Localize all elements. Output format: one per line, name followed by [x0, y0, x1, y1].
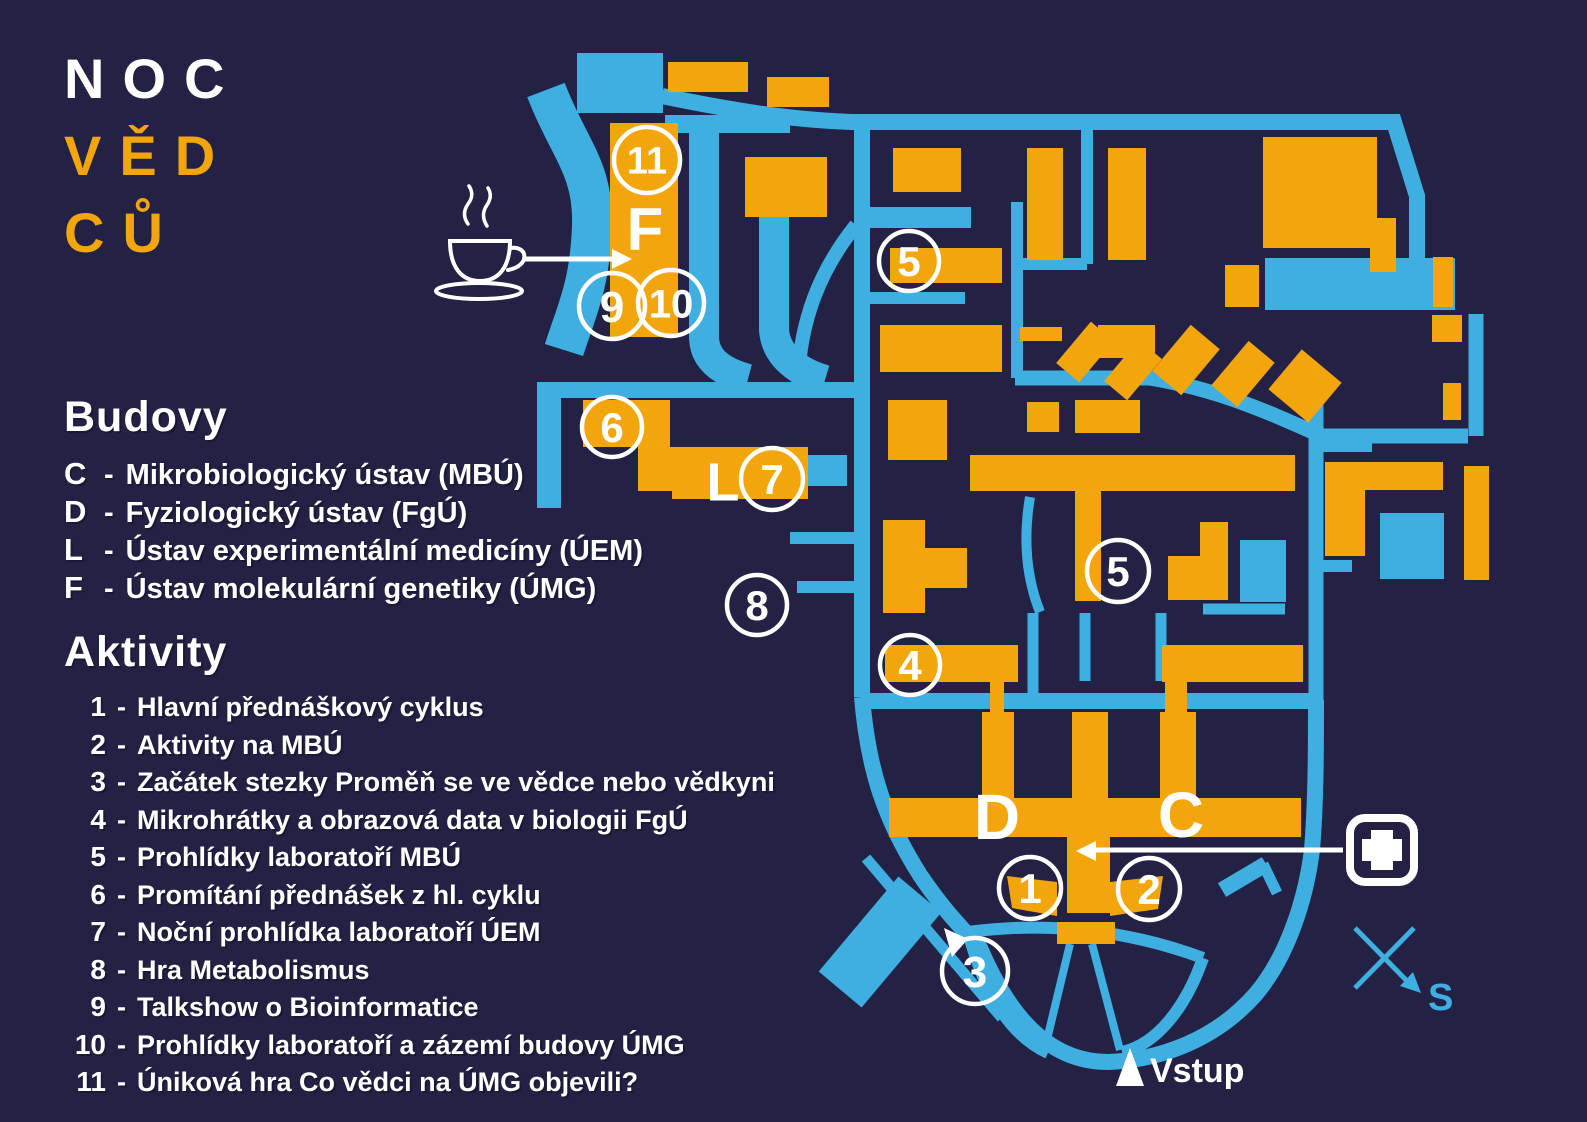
road-fan-spoke-1	[1044, 944, 1070, 1052]
legend-key: 10	[64, 1029, 106, 1061]
building-n2	[767, 77, 829, 107]
svg-text:10: 10	[649, 282, 694, 326]
legend-item-1: 1-Hlavní přednáškový cyklus	[64, 691, 854, 729]
legend-dash: -	[117, 955, 126, 986]
building-ne-s3	[1432, 315, 1462, 342]
building-letter-D: D	[974, 781, 1020, 853]
road-west-curve	[798, 225, 856, 382]
svg-text:5: 5	[1106, 548, 1129, 595]
legend-key: 7	[64, 916, 106, 948]
logo-line-1: NOC	[64, 40, 242, 117]
first-aid-icon	[1350, 818, 1414, 882]
building-w1	[880, 325, 1002, 372]
building-w3	[888, 400, 947, 460]
parking-east	[1380, 513, 1444, 579]
road-firstaid-tick	[1263, 864, 1277, 893]
legend-dash: -	[117, 767, 126, 798]
building-ne-large	[1263, 137, 1377, 248]
legend-text: Noční prohlídka laboratoří ÚEM	[137, 917, 541, 948]
building-ne-s2	[1433, 257, 1453, 307]
legend-item-9: 9-Talkshow o Bioinformatice	[64, 991, 854, 1029]
building-stub-2	[1165, 682, 1187, 712]
legend-text: Promítání přednášek z hl. cyklu	[137, 880, 541, 911]
legend-item-10: 10-Prohlídky laboratoří a zázemí budovy …	[64, 1029, 854, 1067]
legend-key: 6	[64, 879, 106, 911]
building-ne-ext	[1370, 218, 1396, 272]
legend-key: D	[64, 494, 92, 530]
svg-text:4: 4	[898, 642, 922, 689]
svg-text:2: 2	[1137, 866, 1160, 913]
coffee-icon	[436, 186, 524, 299]
svg-text:11: 11	[627, 141, 667, 183]
building-fan-stub	[1057, 922, 1115, 944]
legend-key: C	[64, 456, 92, 492]
legend-text: Ústav molekulární genetiky (ÚMG)	[126, 573, 597, 606]
legend-dash: -	[117, 917, 126, 948]
building-dc-tower-2	[1072, 712, 1108, 800]
building-w2	[962, 250, 1000, 283]
building-mid-band	[970, 455, 1295, 491]
legend-item-5: 5-Prohlídky laboratoří MBÚ	[64, 841, 854, 879]
legend-text: Hlavní přednáškový cyklus	[137, 692, 484, 723]
legend-key: 9	[64, 991, 106, 1023]
building-letter-C: C	[1158, 779, 1204, 851]
legend-text: Prohlídky laboratoří a zázemí budovy ÚMG	[137, 1030, 685, 1061]
legend-dash: -	[117, 1067, 126, 1098]
legend-item-D: D-Fyziologický ústav (FgÚ)	[64, 494, 854, 532]
legend-key: 1	[64, 691, 106, 723]
svg-text:5: 5	[897, 238, 920, 285]
legend-key: 4	[64, 804, 106, 836]
legend-item-3: 3-Začátek stezky Proměň se ve vědce nebo…	[64, 766, 854, 804]
building-stub-1	[990, 682, 1004, 712]
building-curved-band	[546, 90, 592, 350]
parking-mid	[1240, 540, 1286, 602]
compass-icon: S	[1355, 928, 1453, 1019]
building-letter-F: F	[627, 196, 664, 263]
legend-text: Talkshow o Bioinformatice	[137, 992, 479, 1023]
legend-dash: -	[117, 842, 126, 873]
legend-text: Aktivity na MBÚ	[137, 730, 343, 761]
activities-heading: Aktivity	[64, 628, 854, 677]
building-mid-sq1	[1027, 402, 1059, 432]
legend-key: 2	[64, 729, 106, 761]
building-n3	[745, 157, 827, 217]
legend-item-11: 11-Úniková hra Co vědci na ÚMG objevili?	[64, 1066, 854, 1104]
legend-dash: -	[117, 992, 126, 1023]
road-diag-thin	[1026, 497, 1040, 612]
road-fan-spoke-2	[1092, 944, 1120, 1050]
legend-dash: -	[104, 573, 114, 606]
building-tower-2	[1108, 148, 1146, 260]
legend-key: 11	[64, 1066, 106, 1098]
building-tower-1	[1027, 148, 1063, 260]
legend-key: L	[64, 532, 92, 568]
building-w4b	[925, 548, 967, 588]
legend-item-8: 8-Hra Metabolismus	[64, 954, 854, 992]
legend-dash: -	[104, 459, 114, 492]
legend-dash: -	[117, 805, 126, 836]
legend-dash: -	[117, 1030, 126, 1061]
parking-north	[869, 207, 971, 228]
building-e1	[1325, 462, 1443, 490]
building-dc-bar	[889, 798, 1301, 837]
legend-text: Hra Metabolismus	[137, 955, 370, 986]
svg-text:3: 3	[963, 948, 987, 997]
legend-key: F	[64, 570, 92, 606]
road-f-east-1	[704, 117, 748, 379]
logo-line-2: VĚD	[64, 117, 242, 194]
building-c1	[1020, 327, 1062, 341]
building-ne-s4	[1443, 383, 1461, 420]
compass-south-label: S	[1428, 977, 1453, 1019]
buildings-list: C-Mikrobiologický ústav (MBÚ)D-Fyziologi…	[64, 456, 854, 608]
svg-text:9: 9	[600, 283, 624, 332]
legend-key: 8	[64, 954, 106, 986]
legend-text: Úniková hra Co vědci na ÚMG objevili?	[137, 1067, 638, 1098]
legend-key: 3	[64, 766, 106, 798]
legend-dash: -	[117, 692, 126, 723]
legend-panel: Budovy C-Mikrobiologický ústav (MBÚ)D-Fy…	[64, 393, 854, 1104]
legend-dash: -	[117, 730, 126, 761]
building-ne-s1	[1225, 265, 1259, 307]
noc-vedcu-campus-map-poster: S Vstup 11910567845123FLDC NOC VĚD CŮ Bu…	[0, 0, 1587, 1122]
legend-item-4: 4-Mikrohrátky a obrazová data v biologii…	[64, 804, 854, 842]
legend-text: Fyziologický ústav (FgÚ)	[126, 497, 468, 530]
logo-line-3: CŮ	[64, 194, 242, 271]
legend-dash: -	[117, 880, 126, 911]
legend-dash: -	[104, 497, 114, 530]
legend-text: Mikrohrátky a obrazová data v biologii F…	[137, 805, 688, 836]
building-e2	[1464, 466, 1489, 580]
legend-item-F: F-Ústav molekulární genetiky (ÚMG)	[64, 570, 854, 608]
legend-item-C: C-Mikrobiologický ústav (MBÚ)	[64, 456, 854, 494]
entrance-label: Vstup	[1150, 1052, 1244, 1090]
legend-key: 5	[64, 841, 106, 873]
legend-text: Začátek stezky Proměň se ve vědce nebo v…	[137, 767, 775, 798]
activities-list: 1-Hlavní přednáškový cyklus2-Aktivity na…	[64, 691, 854, 1104]
legend-text: Prohlídky laboratoří MBÚ	[137, 842, 461, 873]
parking-northeast	[1265, 258, 1455, 310]
legend-text: Ústav experimentální medicíny (ÚEM)	[126, 535, 643, 568]
building-mid-sq2	[1075, 400, 1140, 433]
legend-dash: -	[104, 535, 114, 568]
building-mbu-east-bar	[1162, 645, 1303, 682]
building-mid-east	[1168, 522, 1228, 600]
plaza-top	[577, 53, 663, 113]
legend-item-L: L-Ústav experimentální medicíny (ÚEM)	[64, 532, 854, 570]
legend-text: Mikrobiologický ústav (MBÚ)	[126, 459, 524, 492]
building-n4	[893, 148, 961, 192]
building-n1	[668, 62, 748, 92]
svg-text:1: 1	[1018, 865, 1041, 912]
logo-noc-vedcu: NOC VĚD CŮ	[64, 40, 242, 271]
legend-item-6: 6-Promítání přednášek z hl. cyklu	[64, 879, 854, 917]
legend-item-2: 2-Aktivity na MBÚ	[64, 729, 854, 767]
building-w4a	[883, 520, 925, 613]
building-e1-leg	[1325, 490, 1365, 556]
legend-item-7: 7-Noční prohlídka laboratoří ÚEM	[64, 916, 854, 954]
buildings-heading: Budovy	[64, 393, 854, 442]
